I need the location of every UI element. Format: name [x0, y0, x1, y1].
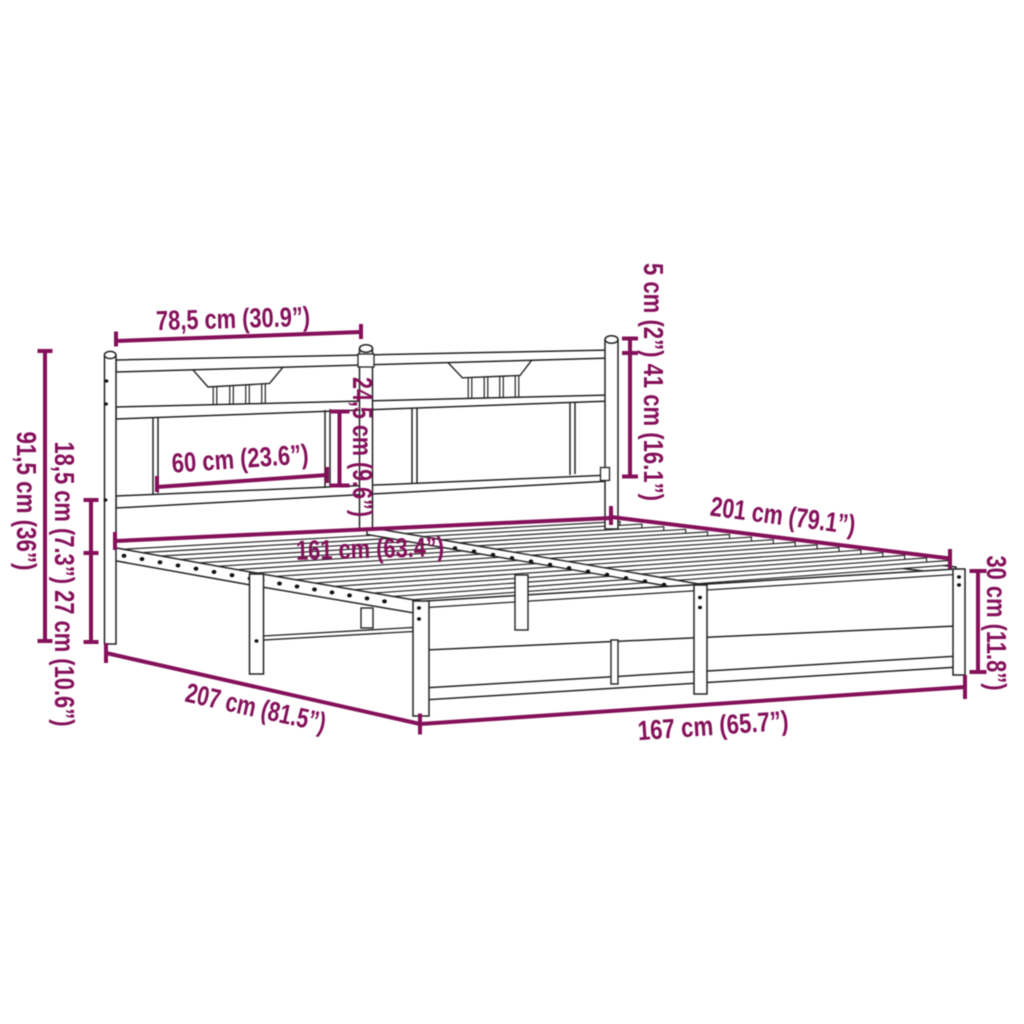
svg-text:24,5 cm (9.6”): 24,5 cm (9.6”): [347, 377, 378, 517]
svg-text:18,5 cm (7.3”) 27 cm (10.6”): 18,5 cm (7.3”) 27 cm (10.6”): [49, 442, 80, 727]
svg-text:30 cm (11.8”): 30 cm (11.8”): [981, 556, 1012, 691]
svg-text:91,5 cm (36”): 91,5 cm (36”): [11, 432, 42, 571]
svg-text:161 cm (63.4”): 161 cm (63.4”): [296, 531, 445, 566]
svg-text:78,5 cm (30.9”): 78,5 cm (30.9”): [156, 301, 311, 336]
svg-text:5 cm (2”) 41 cm (16.1”): 5 cm (2”) 41 cm (16.1”): [638, 263, 669, 501]
